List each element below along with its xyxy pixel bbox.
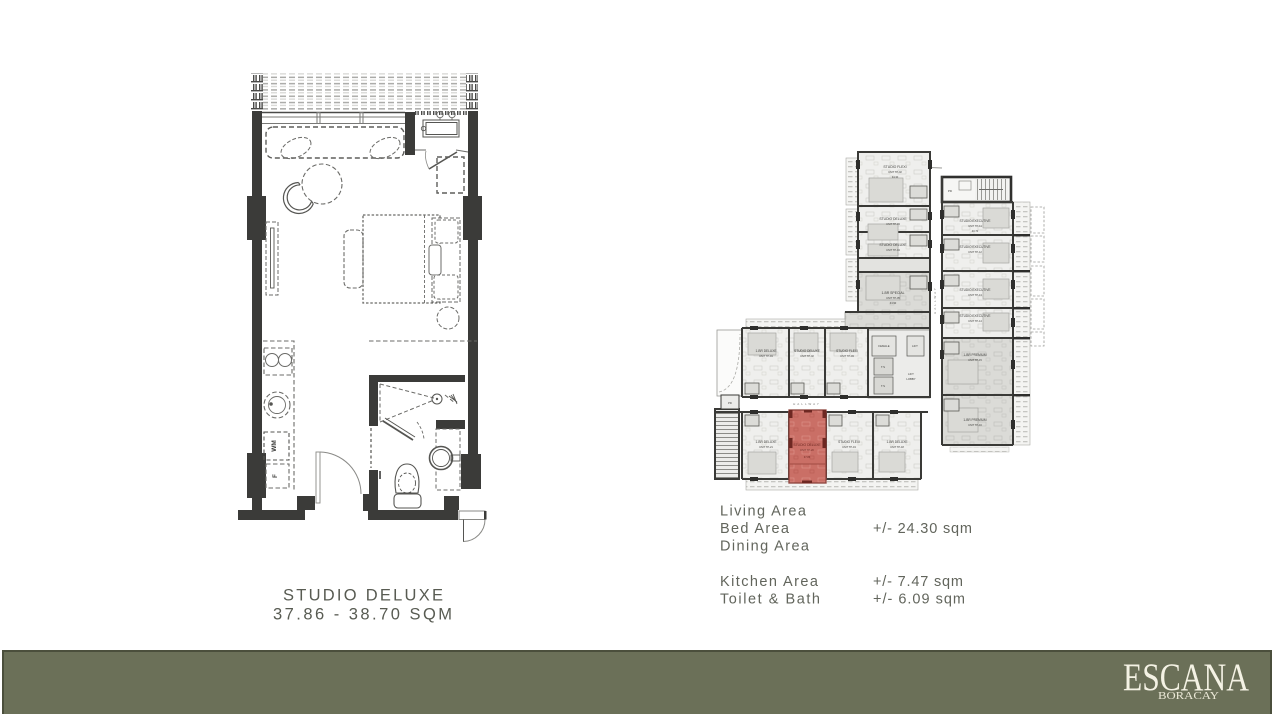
svg-text:34.30: 34.30 [892,175,899,179]
svg-text:37.86 - 38.70 SQM: 37.86 - 38.70 SQM [273,606,452,624]
svg-text:+/- 6.09 sqm: +/- 6.09 sqm [873,592,965,608]
svg-text:STUDIO FLEXI: STUDIO FLEXI [883,165,906,169]
svg-text:STUDIO EXECUTIVE: STUDIO EXECUTIVE [960,288,991,292]
svg-text:UNIT TP-21: UNIT TP-21 [759,445,773,449]
svg-text:STUDIO EXECUTIVE: STUDIO EXECUTIVE [960,314,991,318]
svg-text:UNIT TP-13: UNIT TP-13 [968,293,982,297]
svg-text:1-BR PREMIUM: 1-BR PREMIUM [963,353,987,357]
svg-text:UNIT TP-02: UNIT TP-02 [800,354,814,358]
svg-text:UNIT TP-03: UNIT TP-03 [840,354,854,358]
svg-text:UNIT TP-14: UNIT TP-14 [968,319,982,323]
svg-text:STUDIO EXECUTIVE: STUDIO EXECUTIVE [960,219,991,223]
svg-text:UNIT TP-05: UNIT TP-05 [886,296,900,300]
svg-text:HALLWAY: HALLWAY [933,286,937,314]
svg-text:T.S: T.S [881,365,885,369]
svg-text:Dining Area: Dining Area [720,539,810,555]
svg-text:1-BR DELUXE: 1-BR DELUXE [756,440,777,444]
svg-text:T.S: T.S [881,384,885,388]
svg-text:LOBBY: LOBBY [906,377,915,381]
svg-text:F: F [273,474,279,478]
svg-text:Bed Area: Bed Area [720,521,790,537]
svg-text:UNIT TP-16: UNIT TP-16 [968,423,982,427]
svg-text:STUDIO DELUXE: STUDIO DELUXE [793,443,821,447]
svg-text:STUDIO DELUXE: STUDIO DELUXE [283,587,443,605]
svg-text:1-BR PREMIUM: 1-BR PREMIUM [963,418,987,422]
svg-text:UNIT TP-20: UNIT TP-20 [800,448,814,452]
svg-text:STUDIO FLEXI: STUDIO FLEXI [836,349,858,353]
svg-text:UNIT TP-03: UNIT TP-03 [886,222,900,226]
svg-text:1-BR DELUXE: 1-BR DELUXE [887,440,908,444]
svg-text:UNIT TP-04: UNIT TP-04 [886,248,900,252]
svg-text:PD: PD [728,401,732,405]
svg-text:STUDIO DELUXE: STUDIO DELUXE [879,217,907,221]
svg-text:STUDIO EXECUTIVE: STUDIO EXECUTIVE [960,245,991,249]
svg-text:1-BR DELUXE: 1-BR DELUXE [756,349,777,353]
svg-text:UNIT TP-15: UNIT TP-15 [968,358,982,362]
svg-text:HALLWAY: HALLWAY [793,402,821,406]
svg-text:1-BR SPECIAL: 1-BR SPECIAL [882,291,905,295]
svg-text:40.70: 40.70 [972,229,979,233]
svg-text:BORACAY: BORACAY [1158,691,1219,702]
svg-text:LIFT: LIFT [912,344,918,348]
svg-text:Kitchen Area: Kitchen Area [720,574,819,590]
svg-text:WM: WM [271,440,278,452]
svg-text:UNIT TP-18: UNIT TP-18 [890,445,904,449]
svg-text:STUDIO DELUXE: STUDIO DELUXE [794,349,820,353]
svg-text:+/- 7.47 sqm: +/- 7.47 sqm [873,574,963,590]
svg-text:Toilet & Bath: Toilet & Bath [720,592,820,608]
svg-text:37.86: 37.86 [804,455,811,459]
svg-text:STUDIO FLEXI: STUDIO FLEXI [838,440,860,444]
svg-text:UNIT TP-12: UNIT TP-12 [968,250,982,254]
svg-text:+/- 24.30 sqm: +/- 24.30 sqm [873,521,972,537]
svg-text:UNIT TP-01: UNIT TP-01 [759,354,773,358]
svg-text:FEMALE: FEMALE [878,344,889,348]
svg-text:STUDIO DELUXE: STUDIO DELUXE [879,243,907,247]
svg-text:LIFT: LIFT [908,372,914,376]
svg-text:UNIT TP-11: UNIT TP-11 [968,224,982,228]
svg-text:UNIT TP-19: UNIT TP-19 [842,445,856,449]
svg-text:UNIT TP-02: UNIT TP-02 [888,170,902,174]
svg-text:Living Area: Living Area [720,504,807,520]
svg-text:44.90: 44.90 [890,301,897,305]
